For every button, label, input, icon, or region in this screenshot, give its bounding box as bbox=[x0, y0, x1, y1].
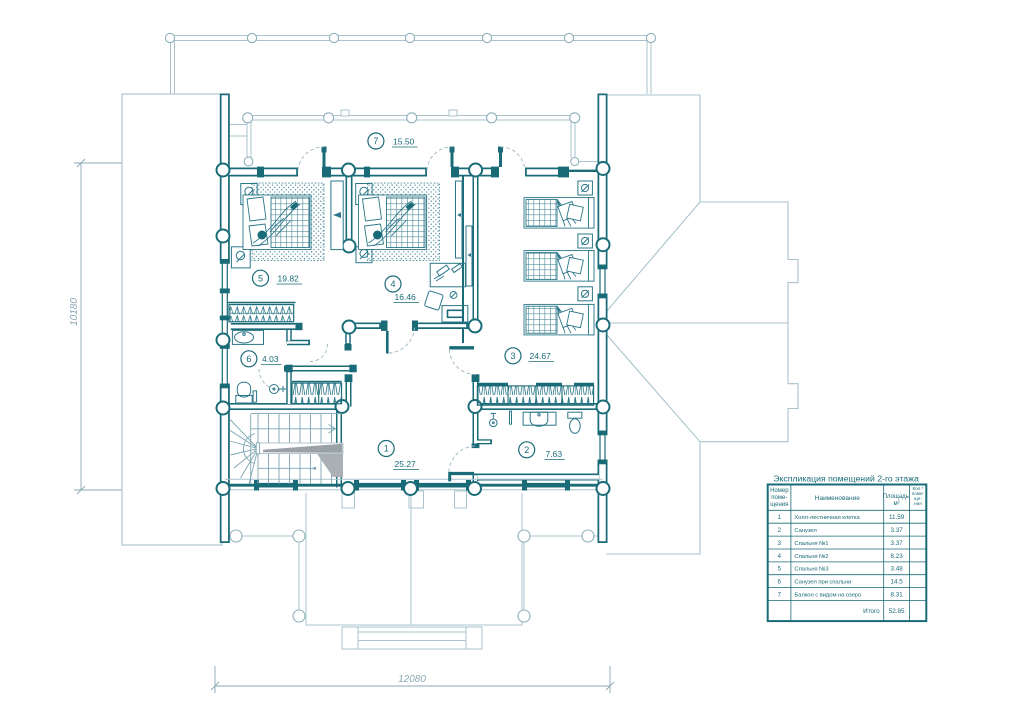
svg-text:14.5: 14.5 bbox=[890, 579, 903, 586]
svg-text:7: 7 bbox=[373, 136, 378, 146]
svg-text:7: 7 bbox=[778, 591, 782, 598]
svg-text:3: 3 bbox=[510, 351, 515, 361]
svg-text:4.03: 4.03 bbox=[262, 354, 279, 364]
svg-text:5: 5 bbox=[778, 566, 782, 573]
svg-text:1: 1 bbox=[384, 444, 389, 454]
svg-text:Балкон с видом на озеро: Балкон с видом на озеро bbox=[794, 592, 862, 598]
svg-text:19.82: 19.82 bbox=[278, 274, 300, 284]
svg-text:Спальня №3: Спальня №3 bbox=[794, 566, 829, 573]
svg-text:Экспликация помещений 2-го эта: Экспликация помещений 2-го этажа bbox=[773, 474, 919, 484]
svg-text:Санузел: Санузел bbox=[794, 528, 817, 534]
svg-text:11.59: 11.59 bbox=[889, 514, 905, 521]
svg-text:3: 3 bbox=[778, 540, 782, 547]
svg-text:4: 4 bbox=[390, 279, 395, 289]
svg-text:Спальня №2: Спальня №2 bbox=[794, 553, 828, 560]
svg-text:12080: 12080 bbox=[398, 674, 426, 685]
svg-text:3.37: 3.37 bbox=[890, 540, 903, 547]
svg-text:щения: щения bbox=[770, 502, 788, 508]
svg-text:Спальня №1: Спальня №1 bbox=[794, 540, 828, 547]
svg-text:Наименование: Наименование bbox=[815, 495, 860, 502]
svg-text:ния: ния bbox=[914, 501, 922, 506]
svg-text:м²: м² bbox=[894, 501, 900, 507]
svg-text:поме-: поме- bbox=[771, 495, 787, 501]
svg-text:6: 6 bbox=[246, 354, 251, 364]
svg-text:16.46: 16.46 bbox=[395, 292, 417, 302]
svg-text:24.67: 24.67 bbox=[530, 351, 552, 361]
svg-text:4: 4 bbox=[778, 553, 782, 560]
svg-text:5: 5 bbox=[258, 273, 263, 283]
svg-text:Площадь,: Площадь, bbox=[883, 494, 911, 500]
svg-text:2: 2 bbox=[524, 445, 529, 455]
svg-text:Итого: Итого bbox=[863, 608, 880, 615]
svg-text:Санузел при спальни: Санузел при спальни bbox=[794, 580, 851, 586]
svg-text:1: 1 bbox=[778, 514, 782, 521]
svg-text:6: 6 bbox=[778, 579, 782, 586]
svg-text:8.31: 8.31 bbox=[890, 591, 903, 598]
svg-text:15.50: 15.50 bbox=[393, 137, 415, 147]
svg-text:3.48: 3.48 bbox=[890, 566, 903, 573]
svg-text:Номер: Номер bbox=[770, 488, 789, 494]
svg-text:8.23: 8.23 bbox=[890, 553, 903, 560]
svg-text:52.85: 52.85 bbox=[889, 608, 905, 615]
svg-text:2: 2 bbox=[778, 527, 782, 534]
svg-text:10180: 10180 bbox=[69, 298, 80, 326]
svg-text:25.27: 25.27 bbox=[395, 459, 417, 469]
svg-text:Холл-лестничная клетка: Холл-лестничная клетка bbox=[794, 515, 860, 521]
svg-text:3.37: 3.37 bbox=[890, 527, 903, 534]
svg-text:7.63: 7.63 bbox=[546, 449, 563, 459]
